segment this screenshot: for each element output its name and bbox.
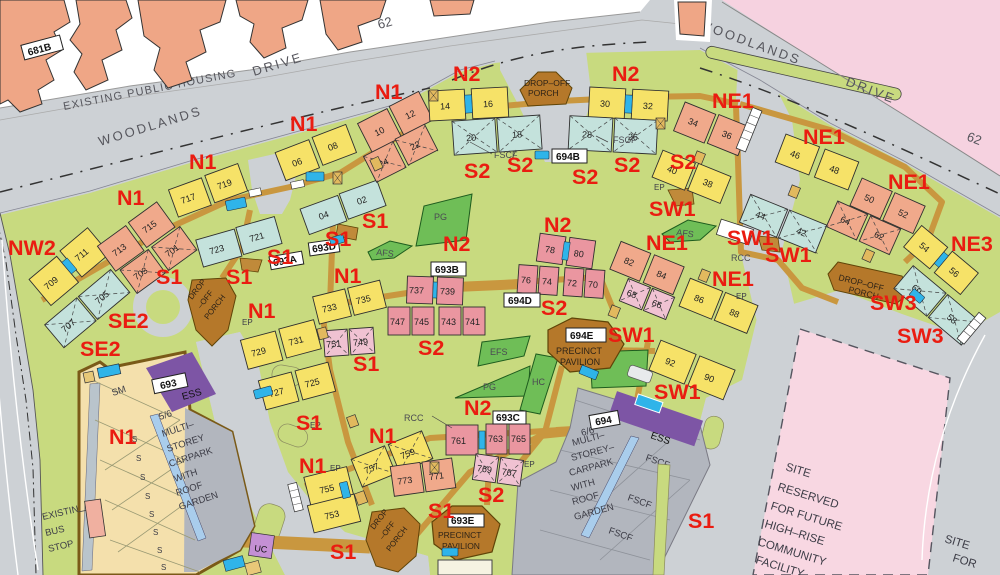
- svg-text:32: 32: [643, 101, 654, 112]
- svg-text:693C: 693C: [496, 413, 520, 424]
- svg-text:NE1: NE1: [712, 89, 754, 113]
- svg-text:747: 747: [390, 317, 405, 327]
- svg-text:S: S: [136, 454, 141, 463]
- svg-text:EP: EP: [330, 464, 341, 473]
- svg-text:S2: S2: [507, 153, 533, 177]
- svg-text:20: 20: [466, 133, 477, 144]
- svg-text:S: S: [140, 473, 145, 482]
- svg-text:S: S: [157, 546, 162, 555]
- svg-text:SE2: SE2: [108, 309, 149, 333]
- svg-text:EP: EP: [736, 292, 747, 301]
- svg-text:N1: N1: [375, 80, 403, 104]
- svg-text:S1: S1: [688, 509, 714, 533]
- svg-text:80: 80: [573, 248, 584, 259]
- svg-text:S2: S2: [478, 483, 504, 507]
- svg-text:743: 743: [441, 317, 456, 327]
- svg-text:EP: EP: [524, 460, 535, 469]
- svg-text:S: S: [145, 492, 150, 501]
- svg-text:S: S: [161, 563, 166, 572]
- svg-text:S1: S1: [330, 540, 356, 564]
- svg-text:S1: S1: [362, 209, 388, 233]
- svg-text:SE2: SE2: [80, 337, 121, 361]
- svg-text:UC: UC: [254, 543, 269, 555]
- svg-text:SW1: SW1: [608, 323, 655, 347]
- svg-text:16: 16: [483, 99, 494, 110]
- svg-text:694D: 694D: [508, 296, 532, 307]
- svg-text:PG: PG: [483, 382, 496, 392]
- svg-text:769: 769: [476, 463, 492, 475]
- svg-text:694B: 694B: [556, 152, 580, 163]
- svg-text:N1: N1: [109, 425, 137, 449]
- svg-text:N2: N2: [544, 213, 572, 237]
- svg-text:AFS: AFS: [376, 247, 394, 259]
- svg-text:739: 739: [440, 286, 455, 297]
- svg-text:NE1: NE1: [888, 170, 930, 194]
- svg-text:S1: S1: [296, 411, 322, 435]
- svg-text:S2: S2: [464, 159, 490, 183]
- svg-text:NW2: NW2: [8, 236, 56, 260]
- svg-text:693E: 693E: [451, 516, 475, 527]
- svg-text:18: 18: [512, 129, 523, 140]
- svg-text:PG: PG: [434, 212, 447, 222]
- svg-text:NE1: NE1: [646, 231, 688, 255]
- svg-text:30: 30: [600, 99, 611, 110]
- svg-text:PRECINCT: PRECINCT: [556, 346, 603, 356]
- svg-text:N1: N1: [189, 150, 217, 174]
- svg-text:PAVILION: PAVILION: [560, 357, 600, 367]
- svg-text:745: 745: [414, 317, 429, 327]
- svg-text:N2: N2: [453, 62, 481, 86]
- svg-text:S1: S1: [267, 245, 293, 269]
- svg-text:EP: EP: [654, 183, 665, 192]
- svg-text:693B: 693B: [435, 265, 459, 276]
- svg-text:78: 78: [544, 244, 555, 255]
- svg-text:28: 28: [582, 129, 593, 140]
- svg-text:761: 761: [451, 436, 466, 446]
- svg-text:NE1: NE1: [712, 267, 754, 291]
- svg-text:773: 773: [397, 475, 413, 487]
- svg-text:SW3: SW3: [870, 291, 917, 315]
- svg-text:SW1: SW1: [765, 243, 812, 267]
- svg-text:741: 741: [465, 317, 480, 327]
- svg-text:N1: N1: [369, 424, 397, 448]
- svg-text:72: 72: [567, 278, 578, 289]
- svg-text:NE3: NE3: [951, 232, 993, 256]
- svg-text:EFS: EFS: [490, 347, 508, 357]
- svg-text:N1: N1: [334, 264, 362, 288]
- svg-text:70: 70: [588, 279, 599, 290]
- svg-text:N1: N1: [117, 186, 145, 210]
- svg-text:76: 76: [521, 275, 532, 286]
- svg-text:S2: S2: [572, 165, 598, 189]
- svg-text:S2: S2: [670, 150, 696, 174]
- svg-text:RCC: RCC: [731, 253, 751, 263]
- svg-text:PORCH: PORCH: [528, 88, 559, 98]
- svg-text:749: 749: [353, 337, 369, 348]
- svg-text:751: 751: [326, 339, 342, 350]
- svg-text:N2: N2: [612, 62, 640, 86]
- svg-text:S2: S2: [541, 296, 567, 320]
- svg-text:HC: HC: [532, 377, 545, 387]
- svg-text:SW1: SW1: [654, 380, 701, 404]
- svg-text:737: 737: [409, 285, 424, 296]
- svg-text:N2: N2: [464, 396, 492, 420]
- svg-text:S1: S1: [226, 265, 252, 289]
- svg-text:N1: N1: [290, 112, 318, 136]
- svg-text:S1: S1: [156, 265, 182, 289]
- svg-text:14: 14: [440, 101, 451, 112]
- svg-text:SW1: SW1: [649, 197, 696, 221]
- svg-text:N1: N1: [299, 454, 327, 478]
- svg-text:763: 763: [488, 434, 503, 444]
- svg-text:694E: 694E: [570, 331, 594, 342]
- svg-text:S2: S2: [418, 336, 444, 360]
- svg-text:PRECINCT: PRECINCT: [438, 530, 481, 540]
- svg-text:S: S: [153, 528, 158, 537]
- svg-text:767: 767: [501, 467, 517, 479]
- svg-text:N2: N2: [443, 232, 471, 256]
- svg-text:S: S: [149, 510, 154, 519]
- svg-text:S1: S1: [353, 352, 379, 376]
- svg-text:S1: S1: [428, 499, 454, 523]
- svg-text:S1: S1: [325, 227, 351, 251]
- svg-text:765: 765: [511, 434, 526, 444]
- svg-text:RCC: RCC: [404, 413, 424, 423]
- svg-text:DROP–OFF: DROP–OFF: [524, 78, 570, 88]
- svg-text:N1: N1: [248, 299, 276, 323]
- svg-text:S2: S2: [614, 153, 640, 177]
- svg-text:NE1: NE1: [803, 125, 845, 149]
- svg-text:SW3: SW3: [897, 324, 944, 348]
- svg-text:74: 74: [542, 276, 553, 287]
